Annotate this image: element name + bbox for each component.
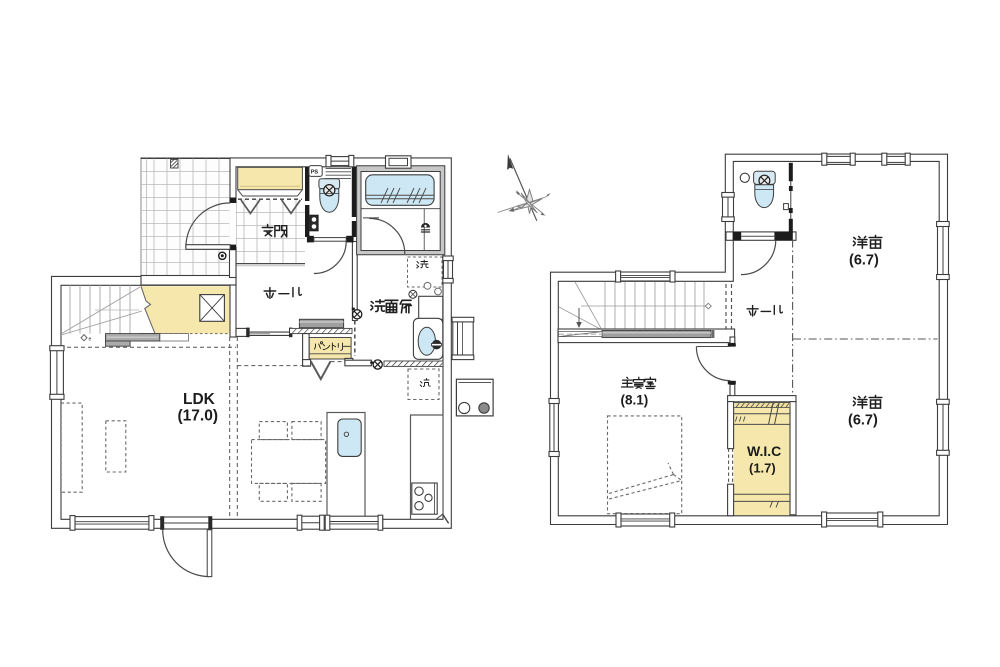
svg-text:PS: PS	[311, 170, 319, 176]
svg-text:e: e	[89, 337, 92, 343]
svg-text:(17.0): (17.0)	[178, 408, 219, 425]
svg-text:(6.7): (6.7)	[848, 413, 878, 429]
svg-text:W.I.C: W.I.C	[747, 443, 781, 459]
svg-text:(1.7): (1.7)	[749, 461, 776, 476]
svg-text:LDK: LDK	[183, 391, 216, 408]
svg-text:(8.1): (8.1)	[621, 393, 649, 408]
svg-text:(6.7): (6.7)	[849, 253, 879, 269]
